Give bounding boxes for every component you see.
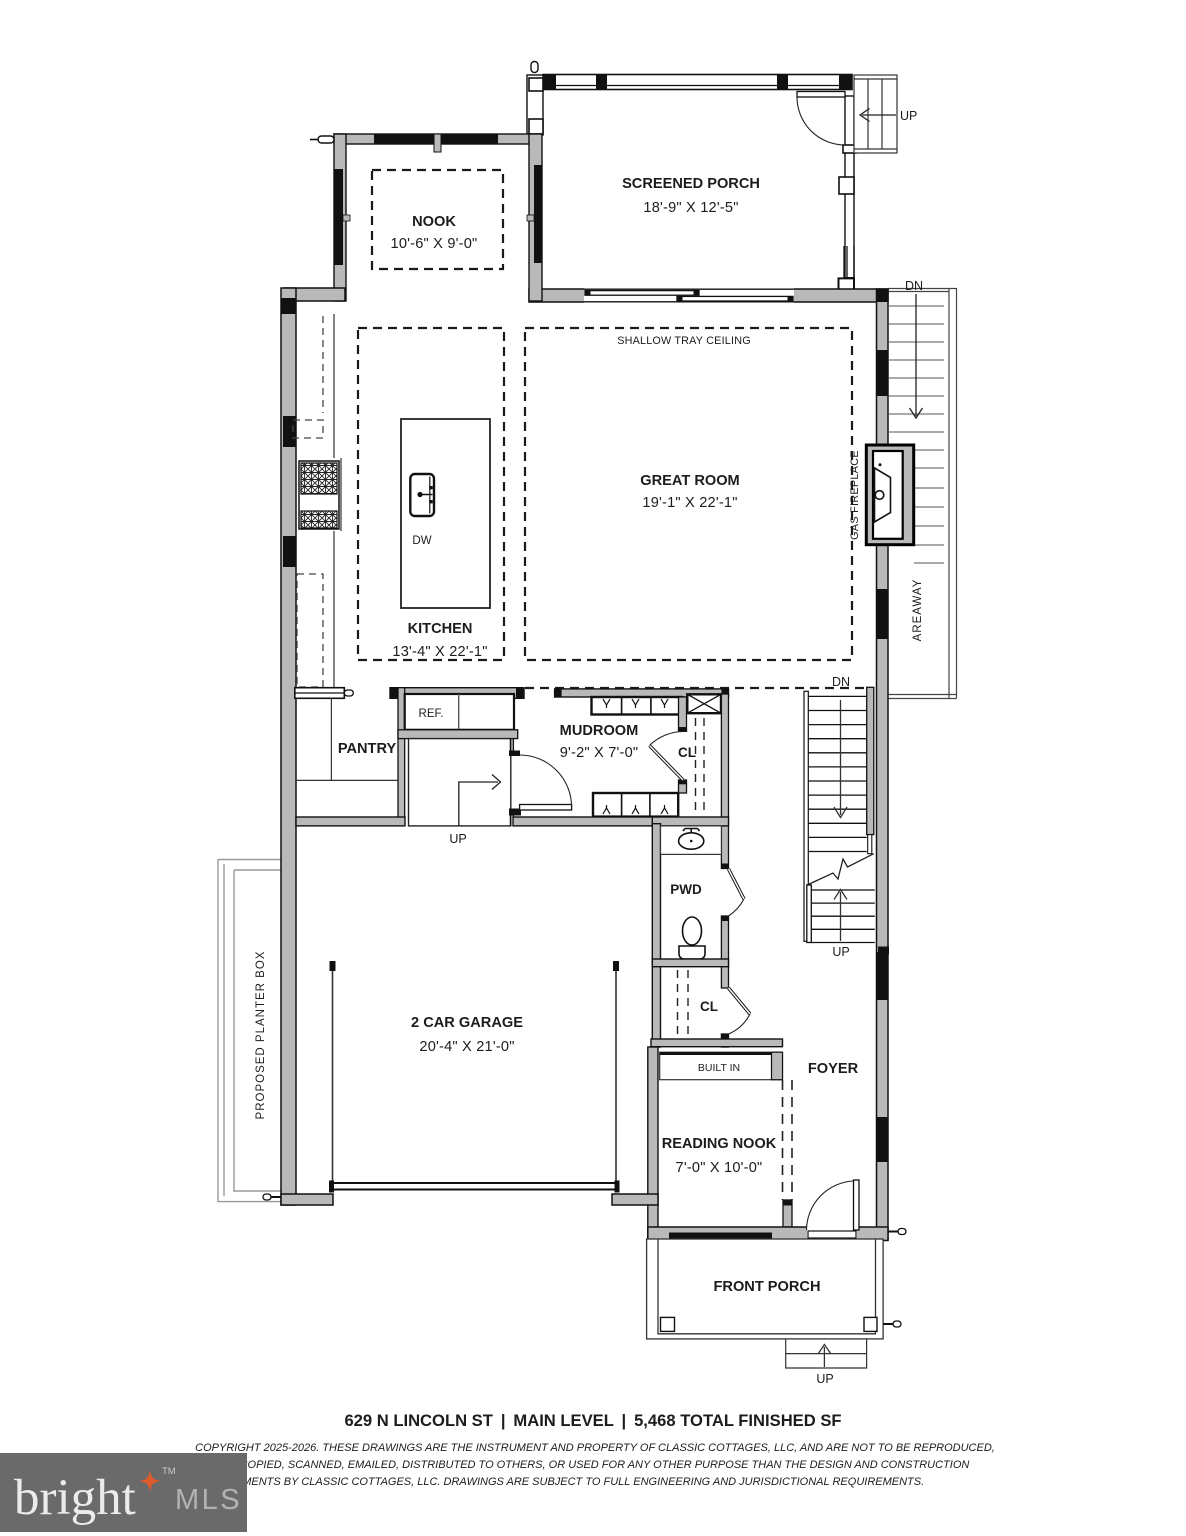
svg-text:9'-2" X 7'-0": 9'-2" X 7'-0" xyxy=(560,745,639,761)
svg-text:COPYRIGHT 2025-2026. THESE DR: COPYRIGHT 2025-2026. THESE DRAWINGS ARE … xyxy=(195,1442,995,1454)
svg-text:UP: UP xyxy=(449,832,466,846)
svg-text:REF.: REF. xyxy=(419,708,444,720)
svg-text:DN: DN xyxy=(832,675,850,689)
svg-text:NOOK: NOOK xyxy=(412,214,456,230)
svg-text:2 CAR GARAGE: 2 CAR GARAGE xyxy=(411,1015,523,1031)
svg-text:UP: UP xyxy=(816,1372,833,1386)
svg-text:20'-4" X 21'-0": 20'-4" X 21'-0" xyxy=(419,1039,514,1055)
svg-text:KITCHEN: KITCHEN xyxy=(408,621,473,637)
svg-text:UP: UP xyxy=(900,109,917,123)
svg-text:MLS: MLS xyxy=(175,1484,242,1516)
svg-text:FOYER: FOYER xyxy=(808,1061,859,1077)
svg-text:19'-1" X 22'-1": 19'-1" X 22'-1" xyxy=(642,495,737,511)
svg-text:FRONT PORCH: FRONT PORCH xyxy=(713,1279,820,1295)
svg-text:GREAT ROOM: GREAT ROOM xyxy=(640,473,739,489)
svg-text:10'-6" X 9'-0": 10'-6" X 9'-0" xyxy=(391,236,478,252)
svg-text:UP: UP xyxy=(832,945,849,959)
svg-text:AREAWAY: AREAWAY xyxy=(912,579,924,642)
svg-text:TM: TM xyxy=(162,1466,176,1477)
svg-text:SHALLOW TRAY CEILING: SHALLOW TRAY CEILING xyxy=(617,335,751,347)
svg-text:CL: CL xyxy=(700,999,718,1014)
svg-text:GAS FIREPLACE: GAS FIREPLACE xyxy=(849,450,861,540)
svg-text:CL: CL xyxy=(678,745,696,760)
svg-text:13'-4" X 22'-1": 13'-4" X 22'-1" xyxy=(392,644,487,660)
svg-text:629 N LINCOLN ST | MAIN LEVE: 629 N LINCOLN ST | MAIN LEVEL | 5,468 TO… xyxy=(344,1411,841,1430)
svg-text:DN: DN xyxy=(905,279,923,293)
svg-text:MUDROOM: MUDROOM xyxy=(560,723,639,739)
svg-text:PHOTOCOPIED, SCANNED, EMAILED,: PHOTOCOPIED, SCANNED, EMAILED, DISTRIBUT… xyxy=(201,1459,970,1471)
svg-text:DOCUMENTS BY CLASSIC COTTAGES,: DOCUMENTS BY CLASSIC COTTAGES, LLC. DRAW… xyxy=(210,1476,924,1488)
svg-text:DW: DW xyxy=(412,535,431,547)
svg-text:PANTRY: PANTRY xyxy=(338,741,397,757)
svg-text:SCREENED PORCH: SCREENED PORCH xyxy=(622,176,760,192)
svg-text:18'-9" X 12'-5": 18'-9" X 12'-5" xyxy=(643,200,738,216)
svg-text:bright: bright xyxy=(14,1470,136,1526)
svg-text:7'-0" X 10'-0": 7'-0" X 10'-0" xyxy=(676,1160,763,1176)
svg-text:READING NOOK: READING NOOK xyxy=(662,1136,777,1152)
svg-text:BUILT IN: BUILT IN xyxy=(698,1062,740,1074)
svg-text:PROPOSED PLANTER BOX: PROPOSED PLANTER BOX xyxy=(255,951,267,1120)
svg-text:PWD: PWD xyxy=(670,882,702,897)
